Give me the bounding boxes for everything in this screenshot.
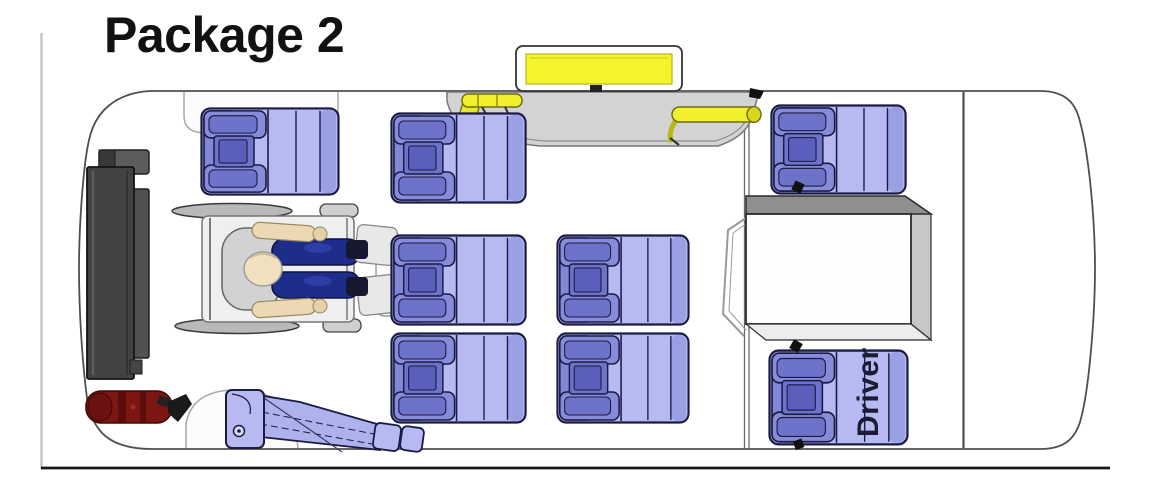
seat-row2-bottom: [391, 334, 525, 423]
seat-row3-top: [557, 236, 688, 325]
engine-cover: [723, 196, 931, 340]
entry-step: [516, 46, 682, 92]
floorplan-diagram: Driver: [0, 0, 1175, 485]
seat-mid-curbside: [391, 114, 525, 203]
vehicle-floorplan-slide: Package 2: [0, 0, 1175, 485]
occupant-shoe-top: [346, 240, 368, 259]
seat-row3-bottom: [557, 334, 688, 423]
seat-driver: [770, 351, 908, 445]
occupant-shoe-bottom: [346, 277, 368, 296]
seat-rear-curbside: [202, 108, 339, 194]
wheelchair-caster-top: [320, 204, 358, 217]
occupant-head: [244, 252, 282, 286]
door-actuator: [590, 85, 602, 92]
seat-row2-top: [391, 236, 525, 325]
driver-seat-label: Driver: [852, 347, 885, 437]
seat-front-passenger: [771, 105, 905, 193]
